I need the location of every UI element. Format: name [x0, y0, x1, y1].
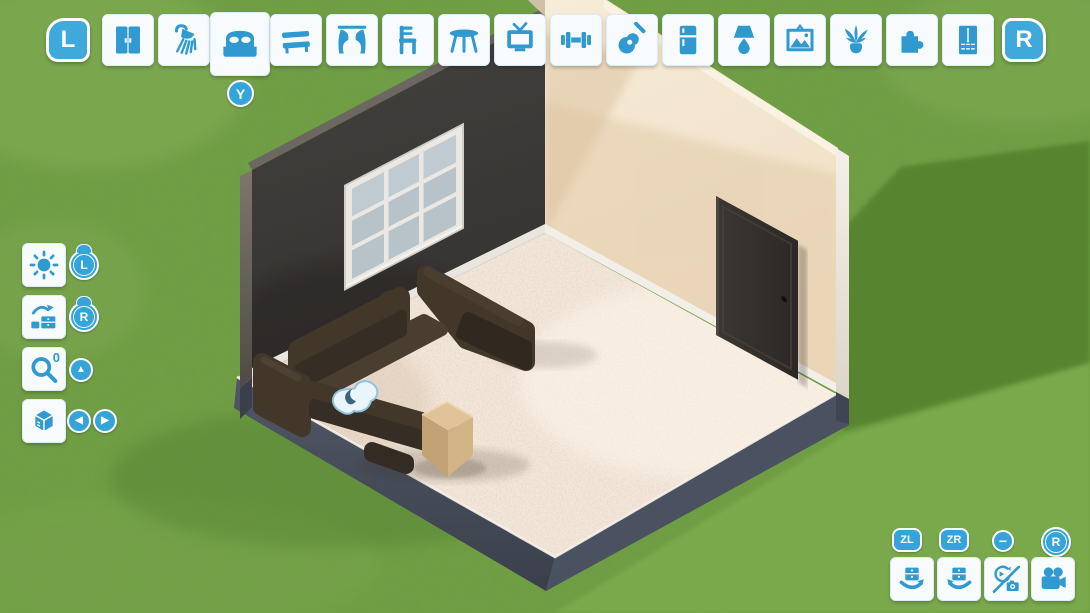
rotate-right-hint[interactable]: ▶ [93, 409, 117, 433]
toolbar-button-curtains[interactable] [326, 14, 378, 66]
toolbar-button-puzzle[interactable] [886, 14, 938, 66]
guitar-icon [614, 22, 650, 58]
toolbar-button-bed-selected[interactable] [210, 12, 270, 76]
stick-cap [76, 244, 92, 253]
right-shoulder-button[interactable]: R [1002, 18, 1046, 62]
plant-icon [838, 22, 874, 58]
toolbar-button-lamp[interactable] [718, 14, 770, 66]
toolbar-button-tv[interactable] [494, 14, 546, 66]
tv-icon [502, 22, 538, 58]
dumbbell-icon [558, 22, 594, 58]
right-wall-outer-side [836, 148, 849, 399]
stick-cap [76, 296, 92, 305]
lamp-icon [726, 22, 762, 58]
right-stick-hint[interactable]: R [69, 302, 99, 332]
right-stick-press-hint[interactable]: R [1041, 527, 1071, 557]
right-stick-press-label: R [1052, 535, 1061, 549]
zoom-level-value: 0 [53, 350, 60, 365]
table-icon [446, 22, 482, 58]
rotate-left-hint[interactable]: ◀ [67, 409, 91, 433]
video-camera-icon [1037, 563, 1069, 595]
toolbar-button-picture[interactable] [774, 14, 826, 66]
chair-icon [390, 22, 426, 58]
furniture-place-icon [28, 301, 60, 333]
fridge-icon [670, 22, 706, 58]
rotate-clockwise-icon [896, 563, 928, 595]
rotate-view-button[interactable] [22, 399, 66, 443]
cube-icon [28, 405, 60, 437]
left-stick-label: L [80, 258, 87, 272]
game-screen: L Y [0, 0, 1090, 613]
puzzle-icon [894, 22, 930, 58]
right-stick-label: R [80, 310, 89, 324]
picture-frame-icon [782, 22, 818, 58]
toolbar-button-table[interactable] [438, 14, 490, 66]
toolbar-button-fridge[interactable] [662, 14, 714, 66]
rotate-counterclockwise-icon [943, 563, 975, 595]
tall-dresser-icon [950, 22, 986, 58]
y-button-hint[interactable]: Y [227, 80, 254, 107]
wardrobe-doors-icon [110, 22, 146, 58]
shower-icon [166, 22, 202, 58]
bench-icon [278, 22, 314, 58]
left-stick-hint[interactable]: L [69, 250, 99, 280]
rotate-item-ccw-button[interactable] [937, 557, 981, 601]
zoom-button[interactable]: 0 [22, 347, 66, 391]
move-furniture-button[interactable] [22, 295, 66, 339]
toolbar-button-wardrobe[interactable] [102, 14, 154, 66]
left-wall-outer-side [240, 170, 252, 389]
zr-button-hint[interactable]: ZR [939, 528, 969, 552]
bed-icon [219, 23, 261, 65]
video-camera-button[interactable] [1031, 557, 1075, 601]
toolbar-button-plant[interactable] [830, 14, 882, 66]
daylight-button[interactable] [22, 243, 66, 287]
toolbar-button-guitar[interactable] [606, 14, 658, 66]
sun-icon [28, 249, 60, 281]
toolbar-button-dumbbell[interactable] [550, 14, 602, 66]
camera-mode-toggle-button[interactable] [984, 557, 1028, 601]
toolbar-button-bench[interactable] [270, 14, 322, 66]
room-scene [0, 0, 1090, 613]
toolbar-button-shower[interactable] [158, 14, 210, 66]
minus-button-hint[interactable]: − [992, 530, 1014, 552]
toolbar-button-chair[interactable] [382, 14, 434, 66]
camera-mode-toggle-icon [990, 563, 1022, 595]
zl-button-hint[interactable]: ZL [892, 528, 922, 552]
rotate-item-cw-button[interactable] [890, 557, 934, 601]
left-shoulder-button[interactable]: L [46, 18, 90, 62]
curtains-icon [334, 22, 370, 58]
zoom-up-hint[interactable]: ▲ [69, 358, 93, 382]
toolbar-button-dresser[interactable] [942, 14, 994, 66]
